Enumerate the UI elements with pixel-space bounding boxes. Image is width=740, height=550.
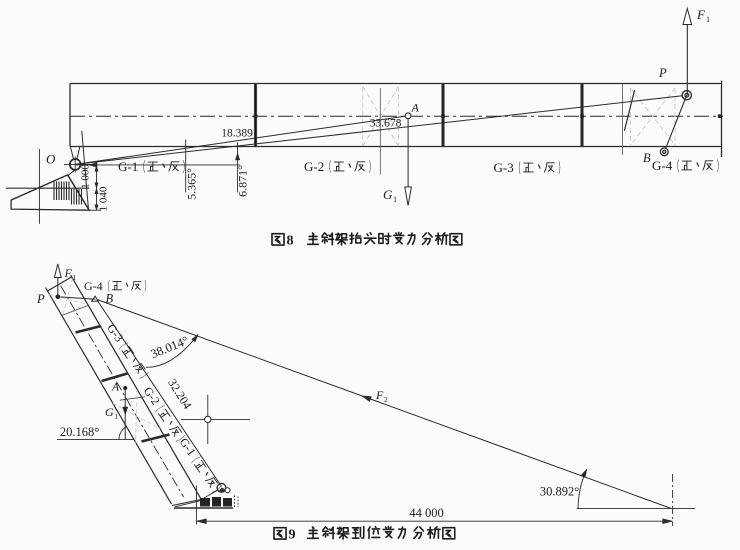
svg-text:1 000: 1 000 <box>80 164 92 189</box>
svg-text:G-1: G-1 <box>118 159 138 174</box>
svg-text:20.168°: 20.168° <box>60 425 99 439</box>
svg-text:1: 1 <box>73 273 77 282</box>
svg-text:F: F <box>375 388 384 402</box>
svg-text:P: P <box>658 66 667 80</box>
svg-text:32.204: 32.204 <box>165 376 194 411</box>
svg-text:A: A <box>111 382 120 394</box>
svg-text:9: 9 <box>289 528 296 543</box>
svg-text:G-2: G-2 <box>304 159 324 174</box>
svg-text:18.389: 18.389 <box>221 128 253 140</box>
svg-text:8: 8 <box>287 234 294 249</box>
svg-text:1: 1 <box>706 15 710 24</box>
svg-text:A: A <box>411 101 420 115</box>
svg-text:G-1: G-1 <box>177 435 199 458</box>
svg-text:G: G <box>383 187 393 202</box>
svg-text:G-4: G-4 <box>652 158 673 173</box>
svg-text:G-3: G-3 <box>104 321 126 344</box>
svg-text:B: B <box>643 151 651 165</box>
svg-text:2: 2 <box>384 395 388 404</box>
svg-text:F: F <box>696 7 706 22</box>
svg-text:G-4: G-4 <box>84 279 103 293</box>
svg-text:1 040: 1 040 <box>98 186 110 211</box>
svg-text:33.678: 33.678 <box>370 117 402 129</box>
svg-text:F: F <box>64 266 73 280</box>
svg-text:44 000: 44 000 <box>409 506 443 520</box>
svg-text:30.892°: 30.892° <box>540 485 579 499</box>
svg-text:1: 1 <box>115 412 119 421</box>
svg-text:G: G <box>105 405 114 419</box>
svg-text:1: 1 <box>393 195 397 204</box>
svg-text:G-3: G-3 <box>494 160 514 175</box>
svg-text:38.014°: 38.014° <box>149 333 191 361</box>
svg-text:G-2: G-2 <box>141 384 163 407</box>
svg-text:6.871°: 6.871° <box>236 165 250 197</box>
svg-text:P: P <box>36 292 45 306</box>
svg-text:5.365°: 5.365° <box>184 168 198 200</box>
svg-text:O: O <box>46 152 56 167</box>
